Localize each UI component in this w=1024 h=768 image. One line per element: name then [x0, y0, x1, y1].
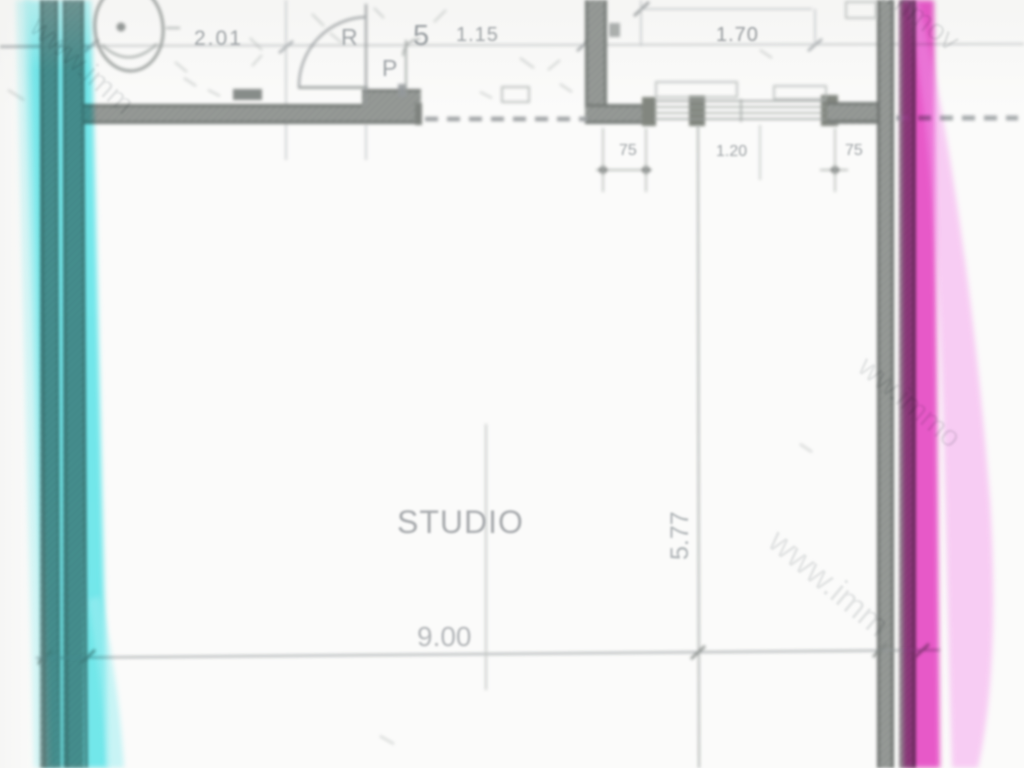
svg-text:1.20: 1.20 [716, 143, 747, 160]
svg-text:1.70: 1.70 [716, 24, 759, 46]
svg-text:75: 75 [619, 142, 637, 159]
svg-text:75: 75 [845, 142, 863, 159]
svg-text:5.77: 5.77 [666, 511, 694, 560]
svg-text:STUDIO: STUDIO [397, 504, 524, 540]
svg-text:9.00: 9.00 [417, 621, 472, 652]
svg-text:2.01: 2.01 [194, 27, 243, 50]
svg-text:P: P [382, 55, 397, 81]
svg-text:1.15: 1.15 [456, 24, 499, 46]
svg-text:R: R [341, 24, 358, 50]
svg-text:5: 5 [413, 20, 429, 52]
